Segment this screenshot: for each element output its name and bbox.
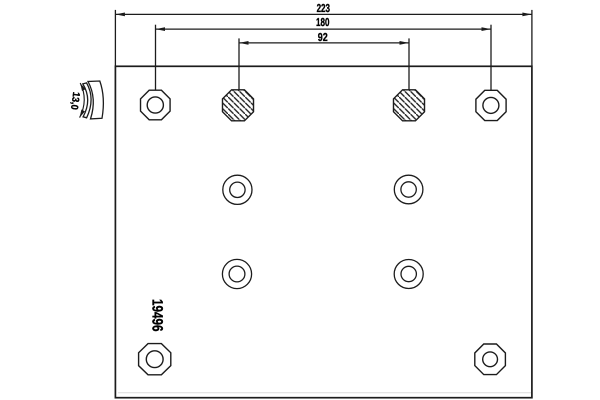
svg-text:13,0: 13,0 xyxy=(68,91,81,111)
svg-text:19496: 19496 xyxy=(148,299,165,332)
svg-text:180: 180 xyxy=(316,17,329,29)
svg-text:223: 223 xyxy=(317,3,330,15)
svg-text:92: 92 xyxy=(318,32,328,44)
